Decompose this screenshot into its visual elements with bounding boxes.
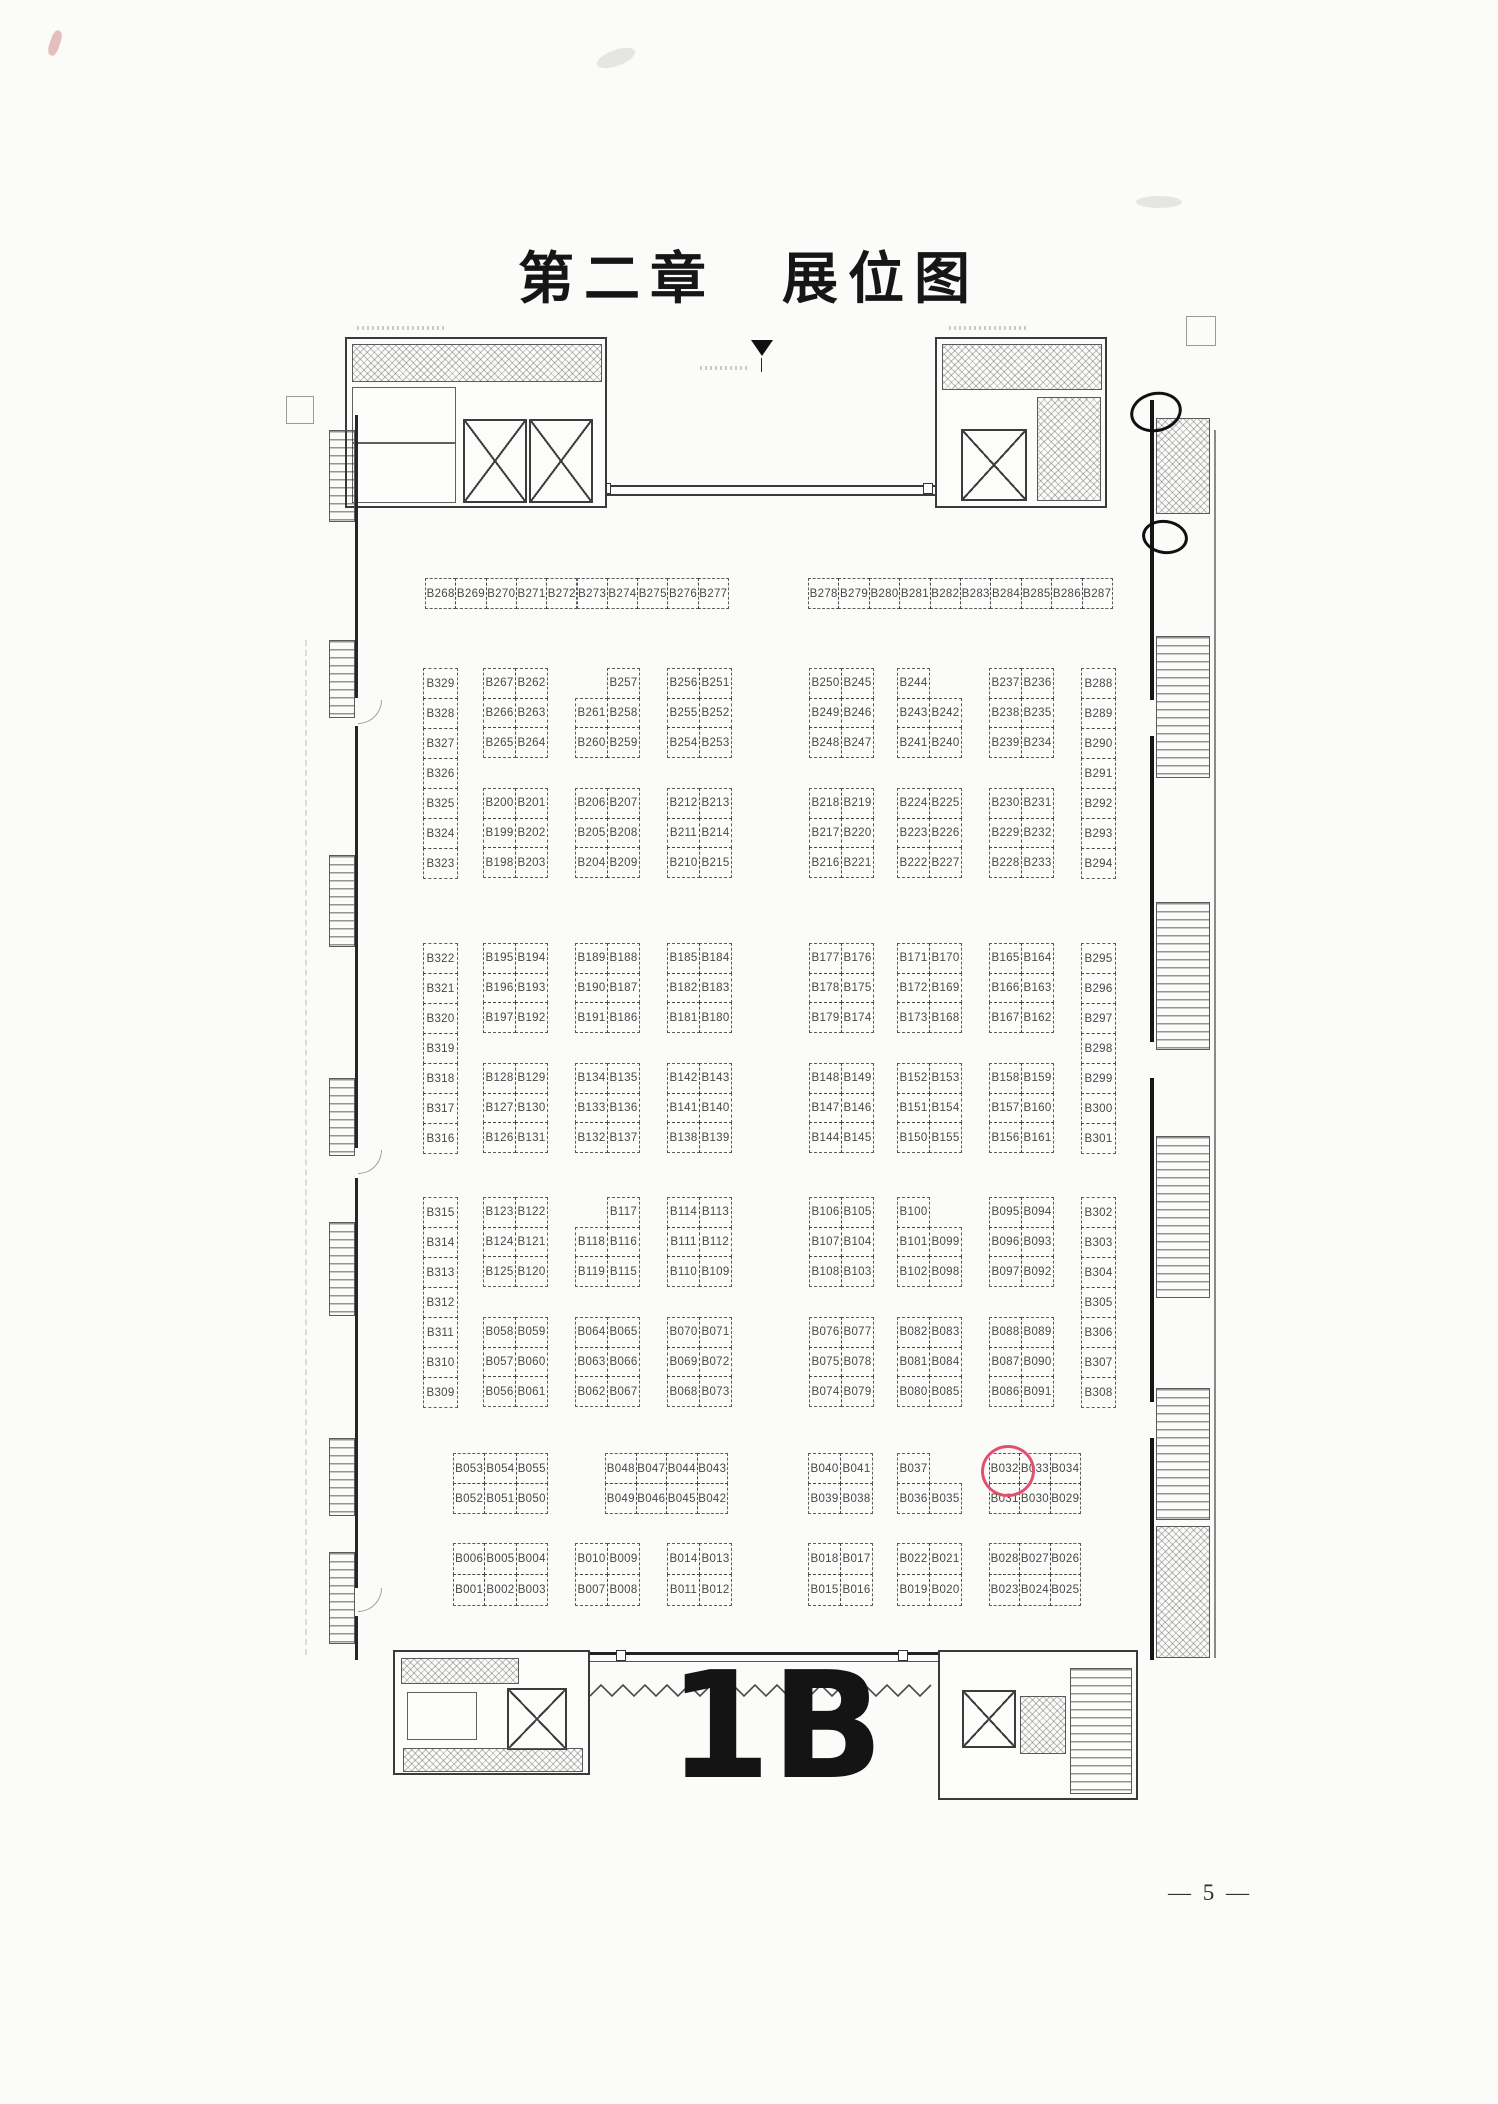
- booth-B188: B188: [607, 943, 640, 974]
- booth-B086: B086: [989, 1376, 1022, 1407]
- booth-B028: B028: [989, 1543, 1020, 1575]
- booth-B171: B171: [897, 943, 930, 974]
- booth-B160: B160: [1021, 1093, 1054, 1124]
- booth-B111: B111: [667, 1227, 700, 1258]
- booth-B320: B320: [423, 1003, 458, 1034]
- booth-B195: B195: [483, 943, 516, 974]
- booth-B062: B062: [575, 1376, 608, 1407]
- booth-B167: B167: [989, 1002, 1022, 1033]
- booth-B066: B066: [607, 1347, 640, 1378]
- booth-B191: B191: [575, 1002, 608, 1033]
- booth-B001: B001: [453, 1574, 485, 1606]
- booth-B186: B186: [607, 1002, 640, 1033]
- booth-B093: B093: [1021, 1227, 1054, 1258]
- booth-B052: B052: [453, 1483, 485, 1514]
- booth-B155: B155: [929, 1122, 962, 1153]
- booth-B123: B123: [483, 1197, 516, 1228]
- booth-B126: B126: [483, 1122, 516, 1153]
- booth-B056: B056: [483, 1376, 516, 1407]
- booth-B157: B157: [989, 1093, 1022, 1124]
- booth-B047: B047: [636, 1453, 668, 1484]
- booth-B240: B240: [929, 727, 962, 758]
- booth-B105: B105: [841, 1197, 874, 1228]
- booth-B051: B051: [484, 1483, 516, 1514]
- booth-B039: B039: [808, 1483, 841, 1514]
- booth-B174: B174: [841, 1002, 874, 1033]
- booth-B315: B315: [423, 1197, 458, 1228]
- booth-B106: B106: [809, 1197, 842, 1228]
- booth-B198: B198: [483, 847, 516, 878]
- booth-B050: B050: [516, 1483, 548, 1514]
- booth-B161: B161: [1021, 1122, 1054, 1153]
- booth-B075: B075: [809, 1347, 842, 1378]
- booth-B257: B257: [607, 668, 640, 699]
- booth-B040: B040: [808, 1453, 841, 1484]
- booth-B311: B311: [423, 1317, 458, 1348]
- booth-B235: B235: [1021, 698, 1054, 729]
- floor-plan: B268B269B270B271B272B273B274B275B276B277…: [0, 0, 1498, 2104]
- booth-B229: B229: [989, 818, 1022, 849]
- booth-B018: B018: [808, 1543, 841, 1575]
- booth-B045: B045: [666, 1483, 698, 1514]
- booth-B306: B306: [1081, 1317, 1116, 1348]
- booth-B266: B266: [483, 698, 516, 729]
- booth-B299: B299: [1081, 1063, 1116, 1094]
- booth-B053: B053: [453, 1453, 485, 1484]
- booth-B280: B280: [869, 578, 900, 609]
- booth-B289: B289: [1081, 698, 1116, 729]
- booth-B079: B079: [841, 1376, 874, 1407]
- booth-B304: B304: [1081, 1257, 1116, 1288]
- booth-B271: B271: [516, 578, 547, 609]
- booth-B183: B183: [699, 973, 732, 1004]
- booth-B048: B048: [605, 1453, 637, 1484]
- booth-B245: B245: [841, 668, 874, 699]
- booth-B224: B224: [897, 788, 930, 819]
- booth-B150: B150: [897, 1122, 930, 1153]
- booth-B262: B262: [515, 668, 548, 699]
- booth-B190: B190: [575, 973, 608, 1004]
- booth-B242: B242: [929, 698, 962, 729]
- booth-B327: B327: [423, 728, 458, 759]
- booth-B225: B225: [929, 788, 962, 819]
- booth-B197: B197: [483, 1002, 516, 1033]
- booth-B107: B107: [809, 1227, 842, 1258]
- booth-B267: B267: [483, 668, 516, 699]
- booth-B135: B135: [607, 1063, 640, 1094]
- booth-B114: B114: [667, 1197, 700, 1228]
- booth-B319: B319: [423, 1033, 458, 1064]
- booth-B212: B212: [667, 788, 700, 819]
- booth-B323: B323: [423, 848, 458, 879]
- booth-B238: B238: [989, 698, 1022, 729]
- booth-B241: B241: [897, 727, 930, 758]
- booth-B151: B151: [897, 1093, 930, 1124]
- booth-B019: B019: [897, 1574, 930, 1606]
- booth-B125: B125: [483, 1256, 516, 1287]
- booth-B316: B316: [423, 1123, 458, 1154]
- booth-B301: B301: [1081, 1123, 1116, 1154]
- booth-B164: B164: [1021, 943, 1054, 974]
- booth-B193: B193: [515, 973, 548, 1004]
- booth-B176: B176: [841, 943, 874, 974]
- booth-B199: B199: [483, 818, 516, 849]
- booth-B141: B141: [667, 1093, 700, 1124]
- booth-B067: B067: [607, 1376, 640, 1407]
- booth-B300: B300: [1081, 1093, 1116, 1124]
- booth-B228: B228: [989, 847, 1022, 878]
- booth-B180: B180: [699, 1002, 732, 1033]
- booth-B187: B187: [607, 973, 640, 1004]
- booth-B035: B035: [929, 1483, 962, 1514]
- booth-B148: B148: [809, 1063, 842, 1094]
- booth-B162: B162: [1021, 1002, 1054, 1033]
- booth-B293: B293: [1081, 818, 1116, 849]
- booth-B213: B213: [699, 788, 732, 819]
- booth-B012: B012: [699, 1574, 732, 1606]
- booth-B015: B015: [808, 1574, 841, 1606]
- booth-B097: B097: [989, 1256, 1022, 1287]
- booth-B239: B239: [989, 727, 1022, 758]
- booth-B137: B137: [607, 1122, 640, 1153]
- booth-B011: B011: [667, 1574, 700, 1606]
- booth-B008: B008: [607, 1574, 640, 1606]
- booth-B272: B272: [546, 578, 577, 609]
- booth-B205: B205: [575, 818, 608, 849]
- booth-B091: B091: [1021, 1376, 1054, 1407]
- booth-B020: B020: [929, 1574, 962, 1606]
- booth-B203: B203: [515, 847, 548, 878]
- booth-B130: B130: [515, 1093, 548, 1124]
- booth-B127: B127: [483, 1093, 516, 1124]
- booth-B010: B010: [575, 1543, 608, 1575]
- booth-B313: B313: [423, 1257, 458, 1288]
- booth-B061: B061: [515, 1376, 548, 1407]
- booth-B038: B038: [840, 1483, 873, 1514]
- booth-B314: B314: [423, 1227, 458, 1258]
- booth-B217: B217: [809, 818, 842, 849]
- booth-B102: B102: [897, 1256, 930, 1287]
- booth-B284: B284: [990, 578, 1021, 609]
- booth-B085: B085: [929, 1376, 962, 1407]
- booth-B258: B258: [607, 698, 640, 729]
- booth-B128: B128: [483, 1063, 516, 1094]
- booth-B253: B253: [699, 727, 732, 758]
- booth-B286: B286: [1051, 578, 1082, 609]
- booth-B133: B133: [575, 1093, 608, 1124]
- booth-B264: B264: [515, 727, 548, 758]
- booth-B166: B166: [989, 973, 1022, 1004]
- booth-B044: B044: [666, 1453, 698, 1484]
- booth-B017: B017: [840, 1543, 873, 1575]
- booth-B116: B116: [607, 1227, 640, 1258]
- booth-B246: B246: [841, 698, 874, 729]
- booth-B065: B065: [607, 1317, 640, 1348]
- booth-B177: B177: [809, 943, 842, 974]
- booth-B005: B005: [484, 1543, 516, 1575]
- booth-B117: B117: [607, 1197, 640, 1228]
- booth-B251: B251: [699, 668, 732, 699]
- booth-B143: B143: [699, 1063, 732, 1094]
- booth-B121: B121: [515, 1227, 548, 1258]
- booth-B181: B181: [667, 1002, 700, 1033]
- booth-B227: B227: [929, 847, 962, 878]
- booth-B182: B182: [667, 973, 700, 1004]
- booth-B283: B283: [960, 578, 991, 609]
- booth-B309: B309: [423, 1377, 458, 1408]
- booth-B312: B312: [423, 1287, 458, 1318]
- booth-B072: B072: [699, 1347, 732, 1378]
- booth-B278: B278: [808, 578, 839, 609]
- booth-B101: B101: [897, 1227, 930, 1258]
- booth-B124: B124: [483, 1227, 516, 1258]
- booth-B175: B175: [841, 973, 874, 1004]
- booth-B296: B296: [1081, 973, 1116, 1004]
- booth-B094: B094: [1021, 1197, 1054, 1228]
- booth-B119: B119: [575, 1256, 608, 1287]
- booth-B210: B210: [667, 847, 700, 878]
- booth-B200: B200: [483, 788, 516, 819]
- booth-B298: B298: [1081, 1033, 1116, 1064]
- booth-B100: B100: [897, 1197, 930, 1228]
- booth-B059: B059: [515, 1317, 548, 1348]
- booth-B138: B138: [667, 1122, 700, 1153]
- booth-B255: B255: [667, 698, 700, 729]
- booth-B196: B196: [483, 973, 516, 1004]
- booth-B234: B234: [1021, 727, 1054, 758]
- booth-B233: B233: [1021, 847, 1054, 878]
- scan-artifact: [305, 640, 307, 1655]
- booth-B276: B276: [667, 578, 698, 609]
- booth-B109: B109: [699, 1256, 732, 1287]
- booth-B237: B237: [989, 668, 1022, 699]
- booth-B297: B297: [1081, 1003, 1116, 1034]
- booth-B318: B318: [423, 1063, 458, 1094]
- booth-B078: B078: [841, 1347, 874, 1378]
- booth-B006: B006: [453, 1543, 485, 1575]
- booth-B282: B282: [930, 578, 961, 609]
- booth-B092: B092: [1021, 1256, 1054, 1287]
- booth-B279: B279: [838, 578, 869, 609]
- booth-B041: B041: [840, 1453, 873, 1484]
- booth-B140: B140: [699, 1093, 732, 1124]
- booth-B287: B287: [1082, 578, 1113, 609]
- booth-B305: B305: [1081, 1287, 1116, 1318]
- booth-B147: B147: [809, 1093, 842, 1124]
- booth-B026: B026: [1050, 1543, 1081, 1575]
- booth-B291: B291: [1081, 758, 1116, 789]
- booth-B025: B025: [1050, 1574, 1081, 1606]
- booth-B285: B285: [1021, 578, 1052, 609]
- booth-B317: B317: [423, 1093, 458, 1124]
- booth-B054: B054: [484, 1453, 516, 1484]
- booth-B244: B244: [897, 668, 930, 699]
- booth-B185: B185: [667, 943, 700, 974]
- booth-B146: B146: [841, 1093, 874, 1124]
- booth-B328: B328: [423, 698, 458, 729]
- booth-B178: B178: [809, 973, 842, 1004]
- booth-B004: B004: [516, 1543, 548, 1575]
- booth-B275: B275: [637, 578, 668, 609]
- booth-B231: B231: [1021, 788, 1054, 819]
- booth-B064: B064: [575, 1317, 608, 1348]
- booth-B310: B310: [423, 1347, 458, 1378]
- page-number: — 5 —: [1168, 1880, 1252, 1906]
- booth-B236: B236: [1021, 668, 1054, 699]
- booth-B153: B153: [929, 1063, 962, 1094]
- booth-B292: B292: [1081, 788, 1116, 819]
- booth-B042: B042: [697, 1483, 729, 1514]
- booth-B222: B222: [897, 847, 930, 878]
- booth-B022: B022: [897, 1543, 930, 1575]
- booth-B068: B068: [667, 1376, 700, 1407]
- booth-B321: B321: [423, 973, 458, 1004]
- booth-B070: B070: [667, 1317, 700, 1348]
- booth-B088: B088: [989, 1317, 1022, 1348]
- booth-B260: B260: [575, 727, 608, 758]
- booth-B113: B113: [699, 1197, 732, 1228]
- booth-B099: B099: [929, 1227, 962, 1258]
- booth-B156: B156: [989, 1122, 1022, 1153]
- booth-B014: B014: [667, 1543, 700, 1575]
- booth-B013: B013: [699, 1543, 732, 1575]
- booth-B325: B325: [423, 788, 458, 819]
- booth-B074: B074: [809, 1376, 842, 1407]
- booth-B206: B206: [575, 788, 608, 819]
- booth-B120: B120: [515, 1256, 548, 1287]
- booth-B139: B139: [699, 1122, 732, 1153]
- booth-B201: B201: [515, 788, 548, 819]
- booth-B096: B096: [989, 1227, 1022, 1258]
- booth-B073: B073: [699, 1376, 732, 1407]
- booth-B129: B129: [515, 1063, 548, 1094]
- booth-B218: B218: [809, 788, 842, 819]
- booth-B248: B248: [809, 727, 842, 758]
- booth-B159: B159: [1021, 1063, 1054, 1094]
- booth-B173: B173: [897, 1002, 930, 1033]
- booth-B324: B324: [423, 818, 458, 849]
- booth-B277: B277: [698, 578, 729, 609]
- booth-B058: B058: [483, 1317, 516, 1348]
- booth-B115: B115: [607, 1256, 640, 1287]
- booth-B036: B036: [897, 1483, 930, 1514]
- booth-B037: B037: [897, 1453, 930, 1484]
- booth-B002: B002: [484, 1574, 516, 1606]
- booth-B077: B077: [841, 1317, 874, 1348]
- booth-B254: B254: [667, 727, 700, 758]
- booth-B169: B169: [929, 973, 962, 1004]
- booth-B082: B082: [897, 1317, 930, 1348]
- booth-B302: B302: [1081, 1197, 1116, 1228]
- booth-B215: B215: [699, 847, 732, 878]
- booth-B060: B060: [515, 1347, 548, 1378]
- booth-B270: B270: [486, 578, 517, 609]
- booth-B308: B308: [1081, 1377, 1116, 1408]
- booth-B232: B232: [1021, 818, 1054, 849]
- booth-B154: B154: [929, 1093, 962, 1124]
- booth-B089: B089: [1021, 1317, 1054, 1348]
- booth-B192: B192: [515, 1002, 548, 1033]
- booth-B063: B063: [575, 1347, 608, 1378]
- booth-B084: B084: [929, 1347, 962, 1378]
- booth-B131: B131: [515, 1122, 548, 1153]
- booth-B184: B184: [699, 943, 732, 974]
- booth-B034: B034: [1050, 1453, 1081, 1484]
- booth-B256: B256: [667, 668, 700, 699]
- booth-B269: B269: [455, 578, 486, 609]
- booth-B069: B069: [667, 1347, 700, 1378]
- booth-B090: B090: [1021, 1347, 1054, 1378]
- booth-B087: B087: [989, 1347, 1022, 1378]
- booth-B023: B023: [989, 1574, 1020, 1606]
- booth-B158: B158: [989, 1063, 1022, 1094]
- booth-B322: B322: [423, 943, 458, 974]
- booth-B016: B016: [840, 1574, 873, 1606]
- booth-B273: B273: [577, 578, 608, 609]
- booth-B221: B221: [841, 847, 874, 878]
- booth-B081: B081: [897, 1347, 930, 1378]
- booth-B029: B029: [1050, 1483, 1081, 1514]
- booth-B007: B007: [575, 1574, 608, 1606]
- booth-B274: B274: [607, 578, 638, 609]
- booth-B163: B163: [1021, 973, 1054, 1004]
- document-page: 第二章 展位图: [0, 0, 1498, 2104]
- booth-B259: B259: [607, 727, 640, 758]
- booth-B202: B202: [515, 818, 548, 849]
- booth-B329: B329: [423, 668, 458, 699]
- booth-B220: B220: [841, 818, 874, 849]
- booth-B204: B204: [575, 847, 608, 878]
- booth-B219: B219: [841, 788, 874, 819]
- booth-B249: B249: [809, 698, 842, 729]
- booth-B268: B268: [425, 578, 456, 609]
- booth-B108: B108: [809, 1256, 842, 1287]
- booth-B098: B098: [929, 1256, 962, 1287]
- booth-B149: B149: [841, 1063, 874, 1094]
- booth-B214: B214: [699, 818, 732, 849]
- booth-B095: B095: [989, 1197, 1022, 1228]
- booth-B170: B170: [929, 943, 962, 974]
- booth-B179: B179: [809, 1002, 842, 1033]
- booth-B057: B057: [483, 1347, 516, 1378]
- booth-B080: B080: [897, 1376, 930, 1407]
- booth-B194: B194: [515, 943, 548, 974]
- booth-B168: B168: [929, 1002, 962, 1033]
- booth-B112: B112: [699, 1227, 732, 1258]
- booth-B132: B132: [575, 1122, 608, 1153]
- booth-B208: B208: [607, 818, 640, 849]
- booth-B207: B207: [607, 788, 640, 819]
- booth-B136: B136: [607, 1093, 640, 1124]
- booth-B250: B250: [809, 668, 842, 699]
- booth-B046: B046: [636, 1483, 668, 1514]
- booth-B261: B261: [575, 698, 608, 729]
- booth-B230: B230: [989, 788, 1022, 819]
- booth-B226: B226: [929, 818, 962, 849]
- booth-B021: B021: [929, 1543, 962, 1575]
- booth-B122: B122: [515, 1197, 548, 1228]
- booth-B104: B104: [841, 1227, 874, 1258]
- booth-B043: B043: [697, 1453, 729, 1484]
- booth-B288: B288: [1081, 668, 1116, 699]
- booth-B295: B295: [1081, 943, 1116, 974]
- booth-B216: B216: [809, 847, 842, 878]
- booth-B009: B009: [607, 1543, 640, 1575]
- booth-B110: B110: [667, 1256, 700, 1287]
- scan-artifact: [1136, 196, 1182, 208]
- booth-B049: B049: [605, 1483, 637, 1514]
- booth-B003: B003: [516, 1574, 548, 1606]
